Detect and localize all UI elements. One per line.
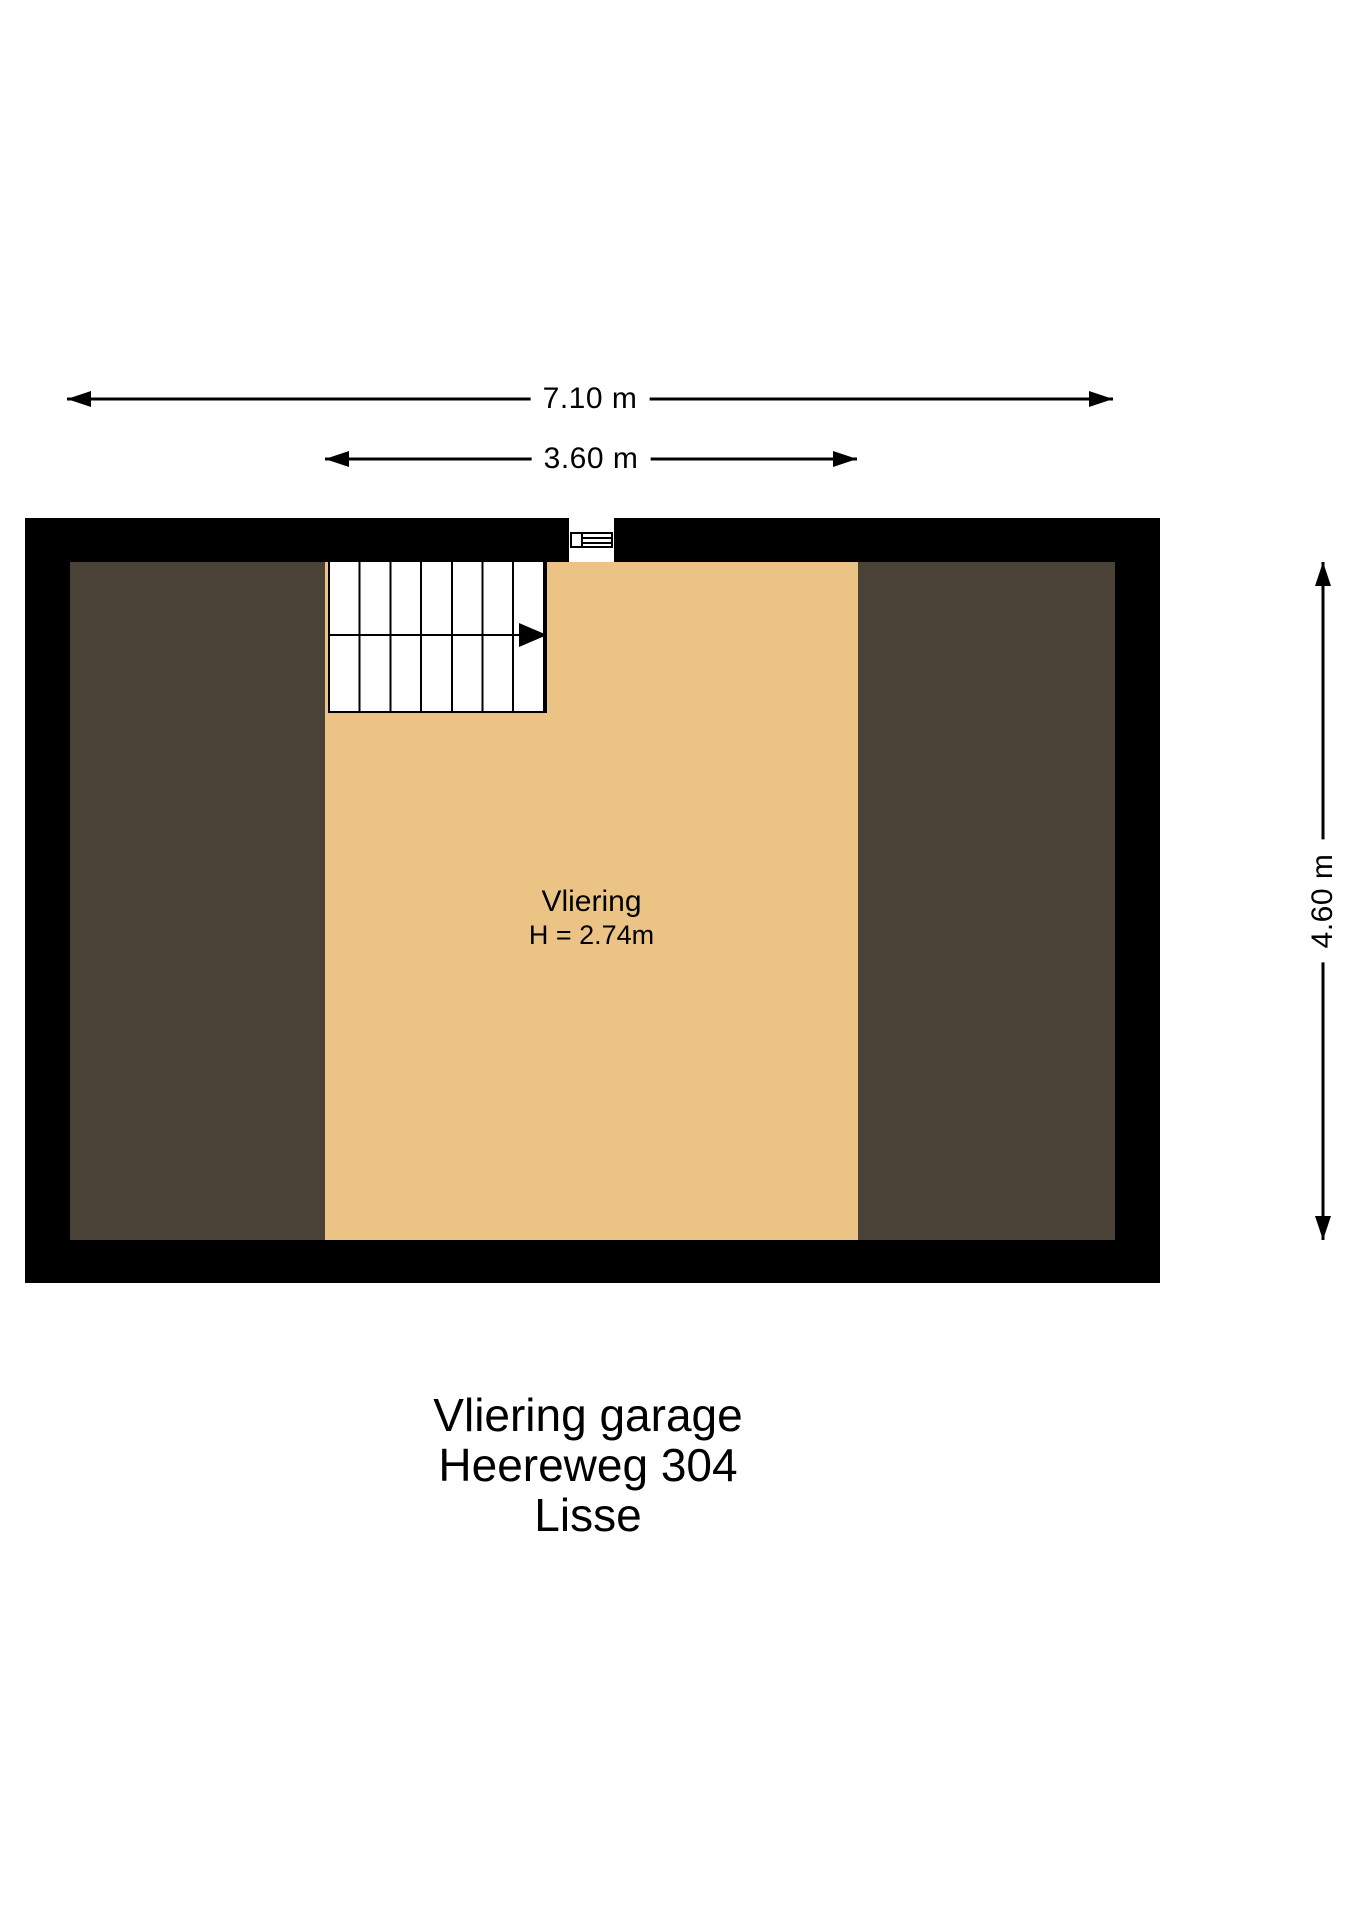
arrowhead-left-icon <box>325 451 349 467</box>
stair-midline <box>330 634 545 636</box>
dimension-depth: 4.60 m <box>1306 562 1340 1240</box>
arrowhead-left-icon <box>67 391 91 407</box>
building-walls: Vliering H = 2.74m <box>25 518 1160 1283</box>
arrowhead-down-icon <box>1315 1216 1331 1240</box>
right-roof-area <box>858 562 1115 1240</box>
dimension-vliering-width: 3.60 m <box>325 442 857 476</box>
dimension-label-total-width: 7.10 m <box>531 382 650 416</box>
title-line-2: Heereweg 304 <box>433 1440 742 1490</box>
hatch-window-icon <box>570 532 613 548</box>
arrowhead-right-icon <box>833 451 857 467</box>
floorplan-canvas: 7.10 m 3.60 m Vliering H = 2.74m <box>0 0 1358 1920</box>
staircase <box>328 562 547 713</box>
room-label: Vliering H = 2.74m <box>325 885 858 950</box>
title-line-3: Lisse <box>433 1490 742 1540</box>
title-line-1: Vliering garage <box>433 1390 742 1440</box>
left-roof-area <box>70 562 325 1240</box>
arrowhead-right-icon <box>1089 391 1113 407</box>
title-block: Vliering garage Heereweg 304 Lisse <box>433 1390 742 1540</box>
wall-opening <box>569 518 614 562</box>
room-name: Vliering <box>325 885 858 918</box>
stair-direction-arrow-icon <box>519 623 547 647</box>
stair-treads <box>330 562 545 711</box>
dimension-label-depth: 4.60 m <box>1306 840 1340 963</box>
dimension-total-width: 7.10 m <box>67 382 1113 416</box>
arrowhead-up-icon <box>1315 562 1331 586</box>
dimension-label-vliering-width: 3.60 m <box>532 442 651 476</box>
room-height-label: H = 2.74m <box>325 920 858 950</box>
